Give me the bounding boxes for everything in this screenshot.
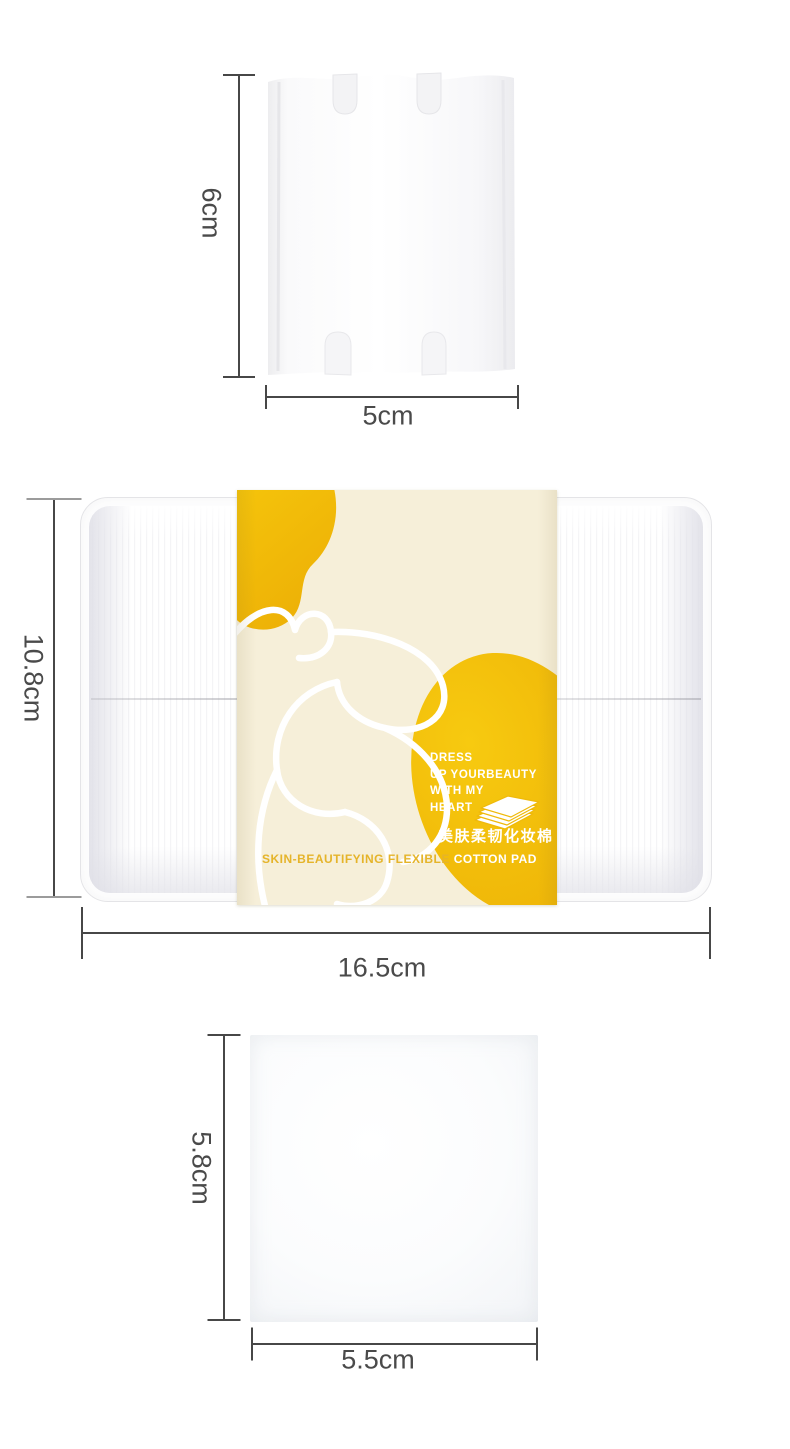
product-dimensions-page: 6cm 5cm	[0, 0, 790, 1449]
pad-body	[268, 75, 515, 375]
pad-top-height-dimension-line	[238, 75, 240, 377]
package-height-label: 10.8cm	[20, 634, 47, 723]
package-width-label: 16.5cm	[338, 955, 427, 982]
package-label: DRESS UP YOURBEAUTY WITH MY HEART 美肤柔韧化妆…	[237, 490, 557, 905]
pad-bottom-width-label: 5.5cm	[341, 1347, 415, 1374]
cotton-pad-photo-bottom	[250, 1035, 538, 1322]
pad-left-crease	[278, 82, 279, 371]
pad-top-tab	[417, 73, 441, 114]
product-name-english-gold-part: SKIN-BEAUTIFYING FLEXIBLE	[262, 852, 450, 866]
pad-bottom-height-label: 5.8cm	[188, 1131, 215, 1205]
pad-top-width-dimension-line	[266, 396, 518, 398]
pad-top-width-label: 5cm	[362, 403, 413, 430]
product-name-english: SKIN-BEAUTIFYING FLEXIBLE COTTON PAD	[262, 852, 537, 866]
pad-top-height-label: 6cm	[198, 187, 225, 238]
pad-right-crease	[503, 80, 505, 369]
yellow-blob-shape	[237, 490, 336, 630]
slogan-line: WITH MY	[430, 783, 537, 800]
cotton-pad-photo-top	[265, 70, 517, 378]
slogan-line: DRESS	[430, 750, 537, 767]
product-name-english-white-part: COTTON PAD	[454, 852, 537, 866]
pad-bottom-tab	[422, 332, 446, 375]
slogan-line: HEART	[430, 800, 537, 817]
pad-bottom-tab	[325, 332, 351, 375]
package-width-dimension-line	[82, 932, 710, 934]
product-name-chinese: 美肤柔韧化妆棉	[438, 825, 554, 846]
pad-bottom-height-dimension-line	[223, 1035, 225, 1320]
slogan-line: UP YOURBEAUTY	[430, 767, 537, 784]
pad-top-tab	[333, 74, 357, 114]
package-height-dimension-line	[53, 499, 55, 897]
label-slogan: DRESS UP YOURBEAUTY WITH MY HEART	[430, 750, 537, 816]
